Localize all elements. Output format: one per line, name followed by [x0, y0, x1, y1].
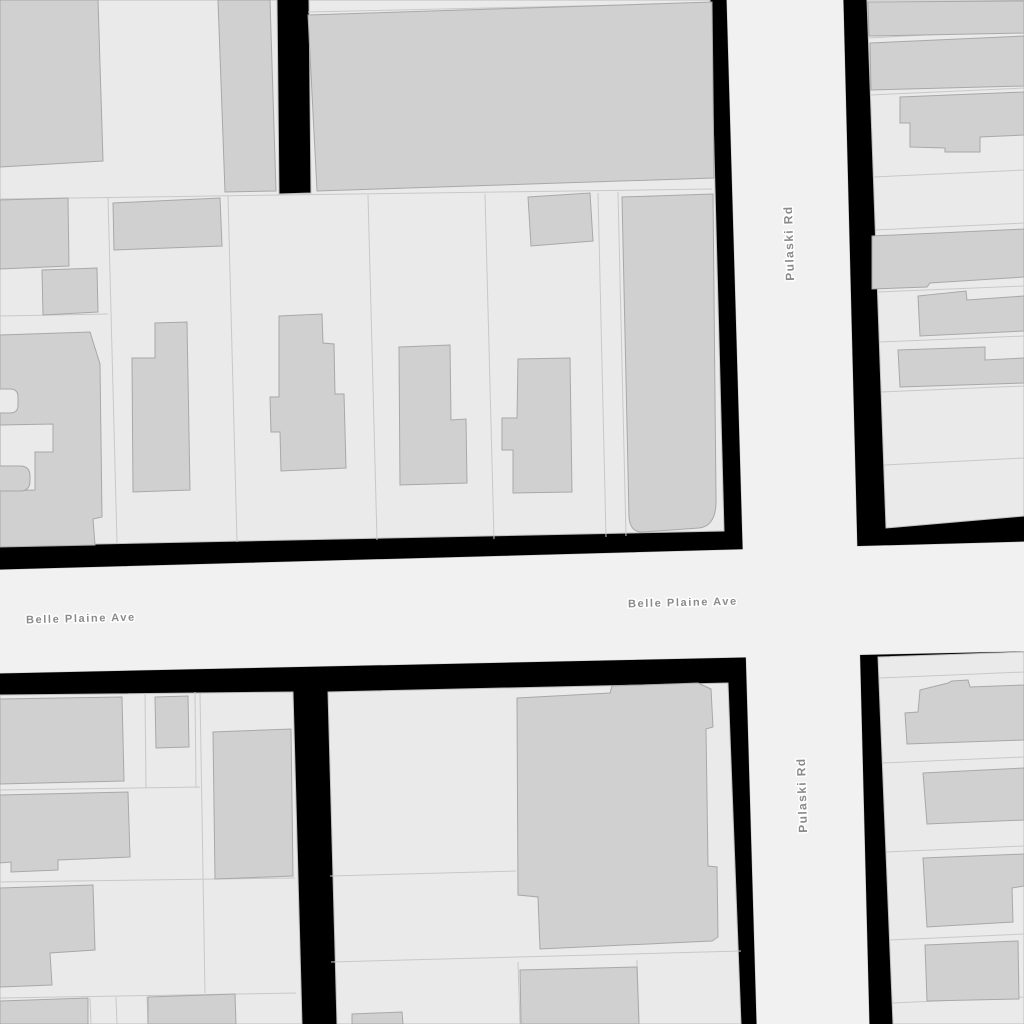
building-sw-big-box — [517, 683, 718, 949]
street-label: Pulaski Rd — [781, 205, 797, 281]
building-se-a — [905, 680, 1024, 744]
building-ne-a — [868, 1, 1024, 36]
building-nw-tall-top — [218, 0, 276, 192]
building-sw-block-k — [0, 697, 124, 784]
building-se-c — [923, 854, 1024, 927]
building-nw-apartment-notch-1 — [0, 389, 18, 413]
building-nw-wide-house — [113, 198, 222, 250]
building-nw-garage — [42, 268, 98, 315]
building-sw-tall — [213, 729, 293, 879]
street-label: Pulaski Rd — [794, 757, 810, 833]
map-canvas[interactable]: Belle Plaine AveBelle Plaine AvePulaski … — [0, 0, 1024, 1024]
building-nw-house-a — [0, 198, 69, 269]
building-se-b — [923, 768, 1024, 824]
building-nw-shed — [528, 193, 593, 246]
building-nw-apartment-wing — [0, 466, 30, 491]
building-sw-bottom-d — [352, 1012, 403, 1024]
map-viewport[interactable]: Belle Plaine AveBelle Plaine AvePulaski … — [0, 0, 1024, 1024]
building-sw-bottom-c — [520, 967, 639, 1024]
building-nw-corner — [0, 0, 103, 167]
building-sw-bottom-a — [0, 998, 88, 1024]
building-se-d — [925, 941, 1019, 1001]
building-nw-tall-rounded — [622, 194, 716, 532]
building-sw-small — [155, 696, 189, 748]
building-nw-large — [308, 2, 714, 191]
building-sw-bottom-b — [148, 994, 236, 1024]
building-ne-b — [870, 36, 1024, 90]
